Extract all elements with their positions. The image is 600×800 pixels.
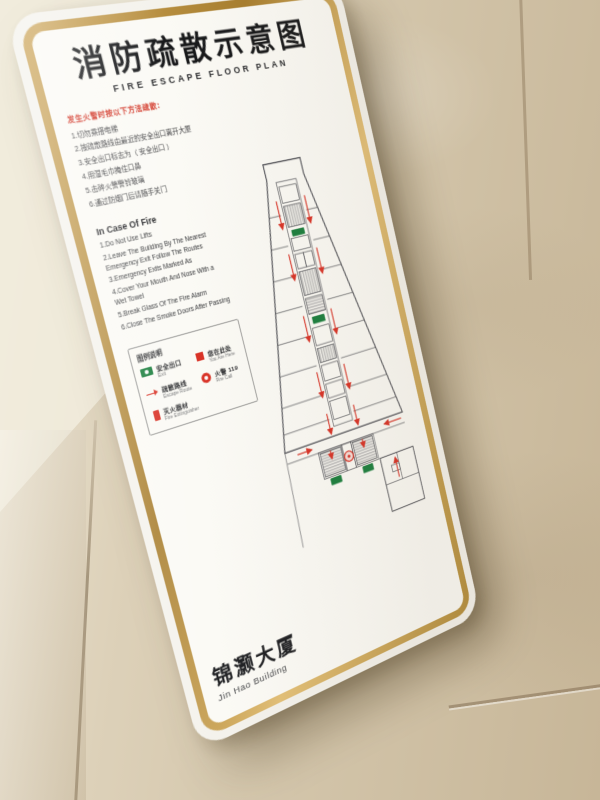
photo-scene: 消防疏散示意图 FIRE ESCAPE FLOOR PLAN 发生火警时按以下方… xyxy=(0,0,600,800)
legend-box: 图例说明 安全出口Exit 疏散路线Escape Route xyxy=(127,319,258,437)
you-are-here-icon xyxy=(196,352,205,362)
wall-tile-groove xyxy=(449,683,600,709)
elevator-core-hatch xyxy=(262,199,377,477)
wall-tile-left xyxy=(0,430,86,800)
building-name-block: 锦灏大厦 Jin Hao Building xyxy=(209,618,322,708)
podium-block xyxy=(380,446,425,511)
route-arrow-icon xyxy=(145,387,159,399)
legend-item-fire-call: 火警 119Fire Call xyxy=(201,361,246,388)
sign-body: 发生火警时按以下方法疏散： 1.切勿乘搭电梯 2.按疏散路线由最近的安全出口离开… xyxy=(65,70,453,708)
exit-sign-icon xyxy=(140,366,154,377)
en-instructions-list: 1.Do Not Use Lifts 2.Leave The Building … xyxy=(99,216,235,336)
exit-marker xyxy=(291,227,305,236)
exit-marker xyxy=(312,313,326,324)
fire-call-icon xyxy=(201,372,213,385)
fire-extinguisher-icon xyxy=(153,410,161,422)
cn-instructions-list: 1.切勿乘搭电梯 2.按疏散路线由最近的安全出口离开大厦 3.安全出口标志为（ … xyxy=(70,111,206,213)
wall-tile-seam-right xyxy=(519,0,532,280)
